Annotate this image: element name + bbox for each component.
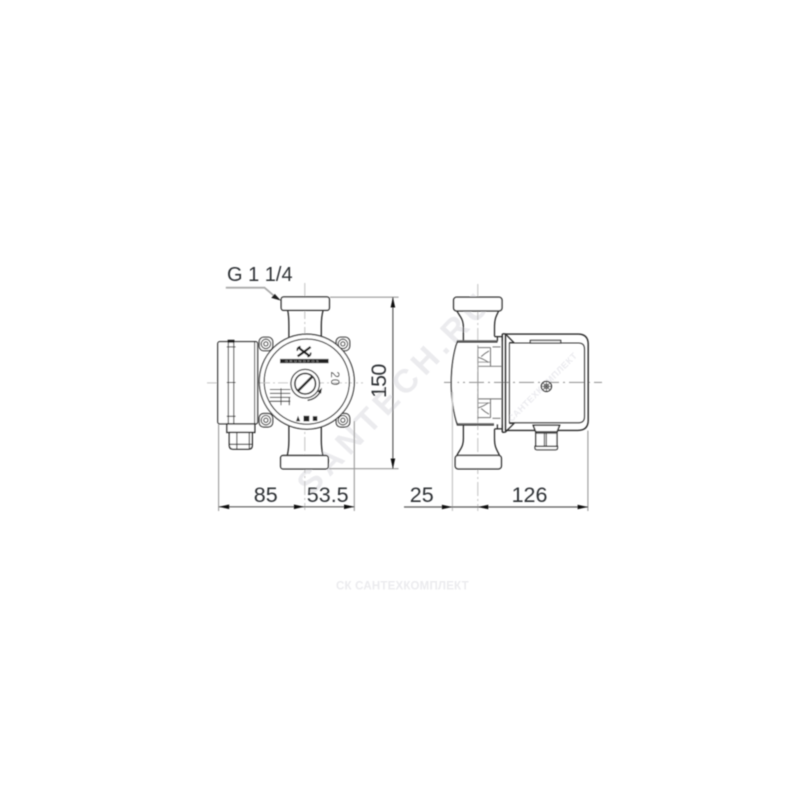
- svg-text:20: 20: [328, 371, 341, 386]
- svg-text:85: 85: [254, 483, 278, 507]
- svg-text:G 1 1/4: G 1 1/4: [227, 264, 293, 286]
- svg-text:150: 150: [367, 364, 391, 398]
- svg-text:СК САНТЕХКОМПЛЕКТ: СК САНТЕХКОМПЛЕКТ: [336, 581, 469, 593]
- svg-text:GRUNDFOS: GRUNDFOS: [285, 360, 320, 364]
- svg-text:25: 25: [410, 483, 434, 507]
- svg-text:126: 126: [512, 483, 548, 507]
- svg-text:53.5: 53.5: [307, 483, 349, 507]
